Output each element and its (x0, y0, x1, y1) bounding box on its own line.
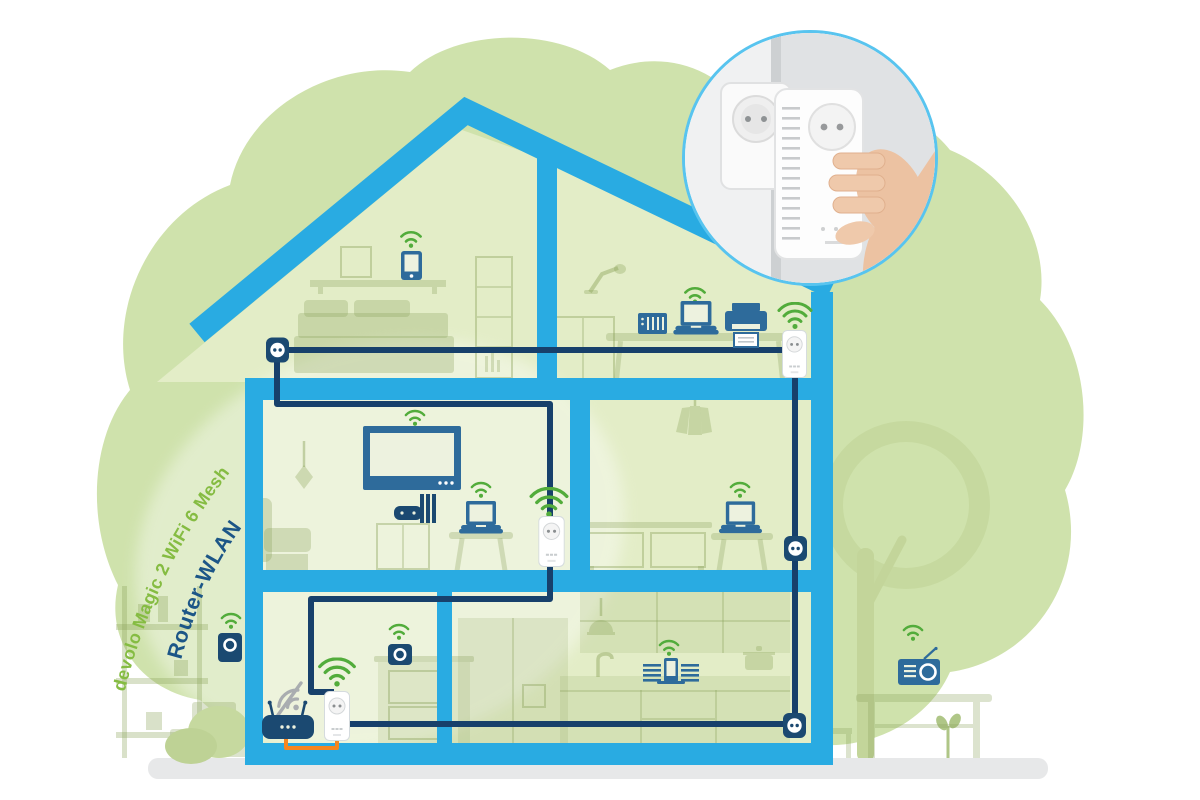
pendant-lamp (292, 441, 316, 491)
power-socket-icon (266, 337, 289, 363)
game-console-icon (394, 494, 440, 524)
laptop-icon (459, 501, 503, 534)
power-socket-icon (784, 536, 807, 561)
garden-table (856, 694, 992, 760)
wifi-icon (899, 622, 927, 641)
powerline-adapter (538, 516, 565, 567)
shelf-support (432, 287, 437, 294)
cooking-pot (743, 646, 775, 672)
hand-plugging-adapter (685, 33, 935, 283)
power-socket-icon (783, 713, 806, 738)
desk-lamp (584, 262, 626, 294)
middle-interior-wall (570, 400, 590, 570)
router-icon (262, 700, 314, 740)
shelf-support (318, 287, 323, 294)
wifi-large-icon (527, 487, 571, 517)
printer-icon (723, 303, 769, 349)
adapter-photo-inset (682, 30, 938, 286)
ground-interior-wall (437, 592, 452, 743)
dresser (582, 522, 712, 571)
home-network-illustration: devolo Magic 2 WiFi 6 Mesh Router-WLAN (0, 0, 1200, 800)
laptop-table (711, 533, 773, 571)
tv-cabinet (376, 523, 430, 570)
office-cabinet (551, 316, 615, 380)
attic-floor (245, 378, 833, 400)
bottom-floor (245, 743, 833, 765)
wifi-icon (397, 228, 425, 248)
right-wall (811, 292, 833, 765)
laptop-icon (673, 301, 719, 335)
radio-icon (896, 645, 942, 687)
bookcase (475, 256, 513, 379)
bush (165, 728, 217, 764)
nas-server-icon (638, 313, 667, 334)
counter (560, 676, 790, 745)
armchair (256, 498, 311, 570)
wifi-icon (726, 479, 754, 498)
wall-shelf (310, 280, 446, 287)
bed (294, 300, 454, 375)
smartphone-dock-icon (643, 658, 699, 684)
wifi-icon (467, 479, 495, 498)
faucet (593, 650, 617, 678)
wifi-icon (655, 637, 683, 656)
wifi-large-icon (317, 656, 357, 688)
wifi-large-icon (775, 302, 815, 329)
wifi-icon (217, 610, 245, 629)
wifi-icon (401, 407, 429, 426)
kitchen-lamp (584, 598, 618, 644)
laptop-table (449, 532, 513, 572)
tv-icon (363, 426, 461, 490)
wardrobe (458, 618, 568, 745)
powerline-adapter (324, 691, 350, 741)
speaker-icon (388, 644, 412, 665)
attic-partition-wall (537, 142, 557, 378)
picture-frame (340, 246, 372, 278)
tablet-icon (401, 251, 422, 280)
laptop-icon (719, 501, 762, 534)
speaker-icon (218, 633, 242, 662)
middle-floor (245, 570, 833, 592)
powerline-adapter (782, 330, 807, 378)
wifi-icon (385, 621, 413, 640)
